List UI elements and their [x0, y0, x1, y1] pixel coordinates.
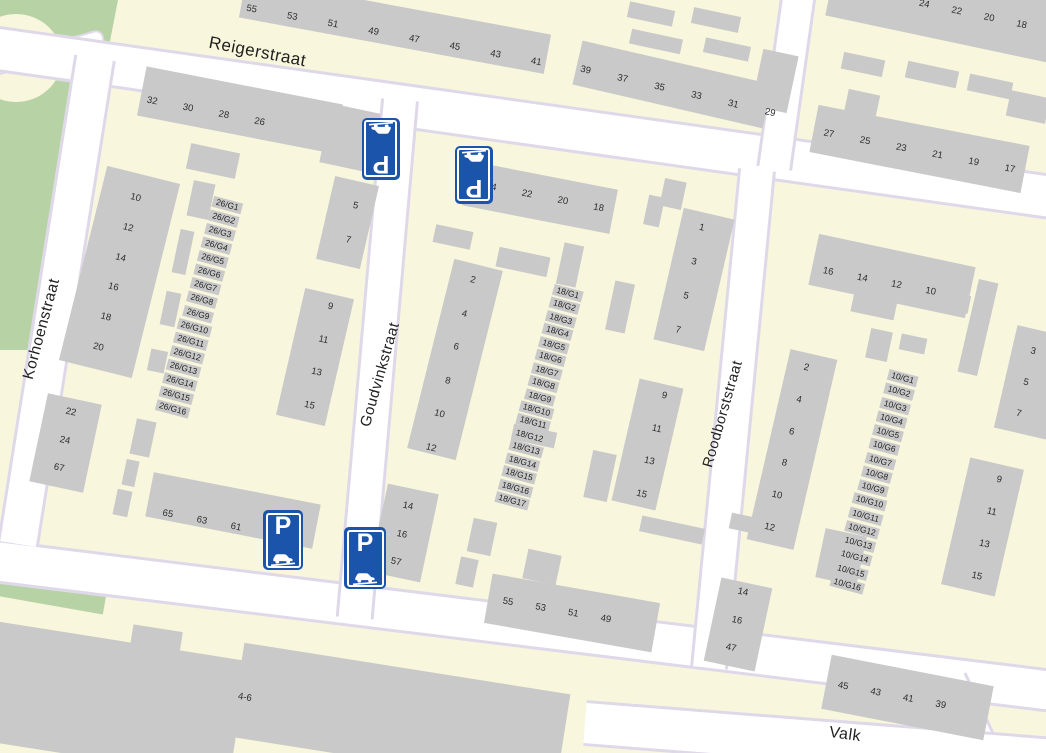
house-number-label: 8	[780, 458, 788, 470]
building	[121, 459, 139, 487]
building	[433, 224, 474, 250]
house-number-label: 27	[823, 127, 835, 140]
building	[127, 624, 183, 671]
house-number-label: 20	[92, 341, 105, 354]
house-number-label: 43	[869, 685, 881, 698]
building	[605, 280, 635, 333]
car-on-kerb-icon	[369, 122, 393, 137]
house-number-label: 7	[674, 324, 682, 336]
building	[659, 178, 686, 210]
house-number-label: 4	[461, 308, 469, 320]
house-number-label: 21	[931, 148, 943, 161]
house-number-label: 9	[327, 301, 334, 313]
house-number-label: 22	[65, 406, 78, 419]
house-number-label: 16	[107, 281, 120, 294]
parking-sign-rotated-1[interactable]: P	[362, 118, 400, 180]
house-number-label: 47	[725, 641, 738, 654]
house-number-label: 49	[600, 612, 612, 625]
house-number-label: 18	[99, 311, 112, 324]
house-number-label: 6	[452, 341, 460, 353]
house-number-label: 25	[859, 134, 871, 147]
house-number-label: 32	[146, 94, 158, 107]
parking-sign-1[interactable]: P	[263, 510, 303, 570]
house-number-label: 43	[489, 47, 501, 60]
house-number-label: 3	[1029, 345, 1037, 357]
house-number-label: 12	[763, 521, 776, 534]
house-number-label: 8	[444, 375, 452, 387]
parking-p-letter: P	[373, 153, 390, 176]
house-number-label: 15	[303, 399, 316, 412]
house-number-label: 19	[968, 155, 980, 168]
house-number-label: 20	[983, 11, 996, 24]
house-number-label: 6	[788, 426, 796, 438]
house-number-label: 65	[162, 507, 174, 520]
building	[1006, 90, 1046, 124]
building	[627, 1, 675, 26]
house-number-label: 9	[995, 474, 1003, 486]
building	[0, 620, 248, 753]
parking-p-letter: P	[275, 515, 292, 538]
building	[703, 37, 751, 61]
house-number-label: 2	[803, 362, 811, 374]
house-number-label: 14	[737, 586, 750, 599]
house-number-label: 51	[567, 607, 579, 620]
house-number-label: 55	[246, 2, 258, 15]
building	[186, 143, 240, 179]
building	[583, 450, 616, 502]
house-number-label: 13	[643, 455, 656, 468]
house-number-label: 16	[396, 528, 409, 541]
house-number-label: 14	[856, 271, 868, 284]
house-number-label: 1	[698, 222, 706, 234]
house-number-label: 30	[182, 101, 194, 114]
building	[629, 29, 683, 54]
parking-p-letter: P	[466, 177, 483, 200]
house-number-label: 20	[557, 194, 569, 207]
house-number-label: 49	[367, 25, 379, 38]
parking-sign-rotated-2[interactable]: P	[455, 146, 493, 204]
house-number-label: 2	[469, 274, 477, 286]
house-number-label: 12	[122, 221, 135, 234]
house-number-label: 9	[661, 390, 669, 402]
garage-number-column-10: 10/G110/G210/G310/G410/G510/G610/G710/G8…	[815, 365, 935, 599]
building	[905, 61, 959, 88]
building	[129, 418, 156, 457]
house-number-label: 12	[425, 441, 438, 454]
house-number-label: 23	[895, 141, 907, 154]
house-number-label: 10	[129, 191, 142, 204]
parking-sign-2[interactable]: P	[344, 527, 386, 589]
building	[495, 247, 550, 277]
house-number-label: 57	[390, 555, 403, 568]
house-number-label: 10	[433, 408, 446, 421]
house-number-label: 13	[310, 366, 323, 379]
building	[865, 328, 893, 362]
parking-p-letter: P	[357, 532, 374, 555]
house-number-label: 12	[890, 278, 902, 291]
house-number-label: 11	[318, 333, 330, 346]
house-number-label: 10	[924, 285, 936, 298]
building	[112, 489, 132, 518]
house-number-label: 7	[345, 234, 352, 246]
building	[639, 516, 705, 545]
house-number-label: 67	[53, 461, 66, 474]
house-number-label: 3	[690, 256, 698, 268]
house-number-label: 39	[579, 63, 592, 76]
building	[899, 333, 928, 354]
house-number-label: 5	[352, 200, 359, 212]
house-number-label: 14	[402, 500, 415, 513]
house-number-label: 22	[950, 4, 963, 17]
car-on-kerb-icon	[271, 551, 295, 566]
house-number-label: 53	[286, 10, 298, 23]
garage-number-column-18: 18/G118/G218/G318/G418/G518/G618/G718/G8…	[480, 280, 600, 515]
house-number-label: 24	[918, 0, 931, 10]
house-number-label: 45	[449, 40, 461, 53]
house-number-label: 41	[902, 692, 914, 705]
house-number-label: 24	[59, 434, 72, 447]
house-number-label: 15	[635, 488, 648, 501]
house-number-label: 5	[682, 290, 690, 302]
building	[467, 518, 498, 556]
building	[841, 52, 886, 77]
car-on-kerb-icon	[462, 150, 486, 165]
house-number-label: 55	[502, 595, 514, 608]
house-number-label: 5	[1022, 377, 1030, 389]
house-number-label: 45	[837, 679, 849, 692]
building-label-4-6: 4-6	[237, 691, 252, 704]
car-on-kerb-icon	[353, 570, 377, 585]
house-number-label: 37	[616, 72, 629, 85]
house-number-label: 7	[1015, 408, 1023, 420]
house-number-label: 22	[521, 187, 533, 200]
house-number-label: 14	[114, 251, 127, 264]
building	[967, 74, 1014, 100]
house-number-label: 28	[218, 108, 230, 121]
house-number-label: 26	[253, 115, 265, 128]
house-number-label: 63	[196, 514, 208, 527]
house-number-label: 13	[978, 538, 991, 551]
house-number-label: 18	[592, 201, 604, 214]
house-number-label: 4	[795, 394, 803, 406]
house-number-label: 18	[1015, 18, 1028, 31]
house-number-label: 41	[530, 55, 542, 68]
building	[691, 7, 741, 33]
building	[455, 556, 478, 587]
house-number-label: 10	[771, 489, 784, 502]
house-number-label: 33	[690, 89, 703, 102]
house-number-label: 31	[727, 97, 740, 110]
building	[230, 643, 571, 753]
house-number-label: 47	[408, 32, 420, 45]
house-number-label: 16	[731, 614, 744, 627]
house-number-label: 15	[970, 570, 983, 583]
house-number-label: 39	[935, 698, 947, 711]
house-number-label: 51	[327, 17, 339, 30]
building	[556, 242, 584, 287]
house-number-label: 16	[822, 265, 834, 278]
house-number-label: 35	[653, 80, 666, 93]
house-number-label: 61	[230, 520, 242, 533]
house-number-label: 11	[651, 422, 663, 435]
house-number-label: 53	[535, 601, 547, 614]
map-canvas[interactable]: Reigerstraat Korhoenstraat Goudvinkstraa…	[0, 0, 1046, 753]
house-number-label: 11	[986, 505, 998, 518]
house-number-label: 17	[1004, 162, 1016, 175]
